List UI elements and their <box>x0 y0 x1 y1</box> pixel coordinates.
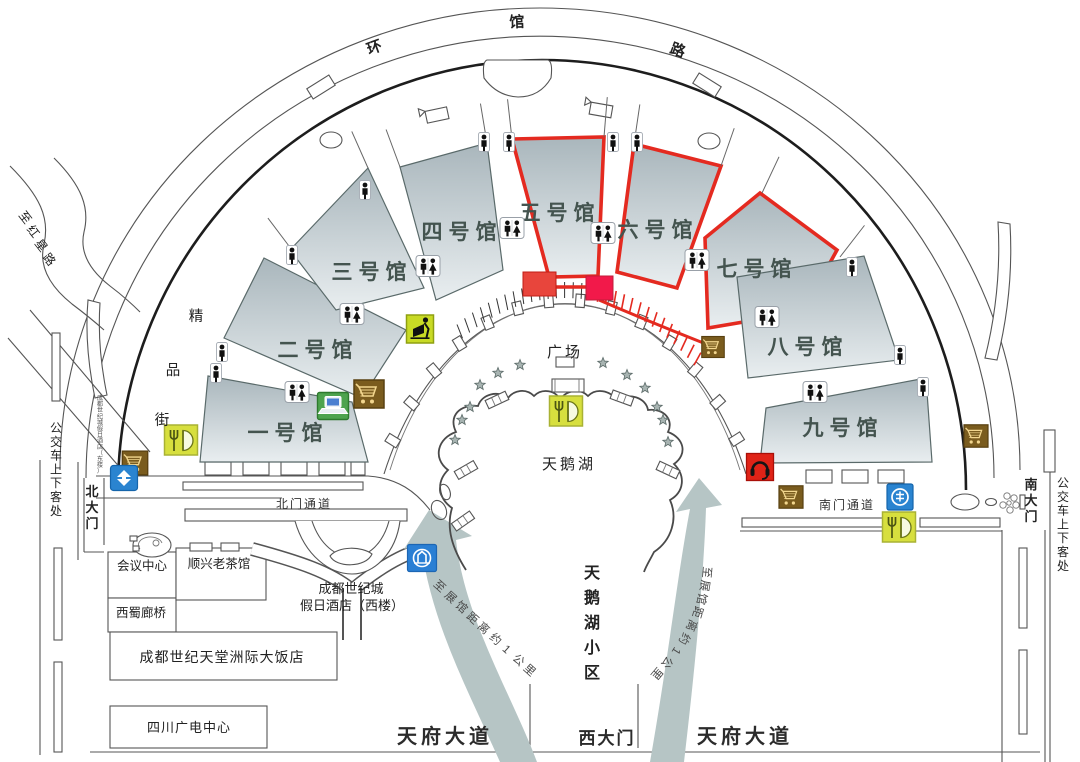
conference-center-label: 会议中心 <box>117 558 168 573</box>
tree-marker <box>465 402 475 412</box>
svg-text:公: 公 <box>1057 476 1069 490</box>
highlight-entrance-east <box>586 276 613 300</box>
svg-text:处: 处 <box>1057 559 1069 573</box>
hall-4-label: 四号馆 <box>422 220 503 244</box>
svg-text:上: 上 <box>1057 517 1069 531</box>
south-gate-label: 南大门 <box>1024 477 1037 524</box>
person-icon <box>895 346 906 365</box>
svg-text:小: 小 <box>584 639 600 657</box>
tree-marker <box>663 437 673 447</box>
person-icon <box>632 133 643 152</box>
restroom-icon <box>500 218 524 239</box>
svg-text:南: 南 <box>1024 477 1037 492</box>
svg-text:）: ） <box>97 468 103 475</box>
svg-text:门: 门 <box>1024 509 1037 524</box>
svg-text:上: 上 <box>50 462 62 476</box>
shopping-cart-icon <box>779 486 803 508</box>
hongxing-road-label: 至红星路 <box>16 208 59 268</box>
west-gate-label: 西大门 <box>579 728 636 748</box>
holiday-hotel-east-label: 成都世纪城假日酒店（东楼） <box>97 394 103 475</box>
tianfu-avenue-right-label: 天府大道 <box>697 724 793 748</box>
svg-text:环: 环 <box>364 37 384 58</box>
svg-text:馆: 馆 <box>509 13 525 32</box>
restaurant-icon <box>550 396 583 426</box>
bus-stop-left-label: 公交车上下客处 <box>50 421 62 518</box>
hall-3-label: 三号馆 <box>332 260 413 284</box>
restroom-icon <box>803 382 827 403</box>
north-gate-label: 北大门 <box>85 484 98 531</box>
svg-text:交: 交 <box>1057 489 1069 504</box>
laptop-icon <box>318 393 349 420</box>
svg-text:大: 大 <box>85 500 98 515</box>
svg-text:天: 天 <box>584 565 601 582</box>
shopping-cart-icon <box>702 337 725 358</box>
atm-icon <box>407 315 434 343</box>
person-icon <box>211 364 222 383</box>
bus-stop-right-label: 公交车上下客处 <box>1057 476 1069 573</box>
svg-text:门: 门 <box>85 516 98 531</box>
approach-arrows <box>404 478 722 762</box>
holiday-hotel-label-line2: 假日酒店（西楼） <box>300 598 404 613</box>
tree-marker <box>493 368 503 378</box>
plaza-label: 广场 <box>547 344 583 361</box>
boutique-street-label: 精品街 <box>155 308 204 429</box>
inner-colonnade <box>384 282 746 474</box>
person-icon <box>479 133 490 152</box>
svg-text:客: 客 <box>1057 544 1069 559</box>
restroom-icon <box>340 304 364 325</box>
hall-5-label: 五号馆 <box>520 201 601 225</box>
svg-text:街: 街 <box>155 412 170 429</box>
shopping-cart-icon <box>354 380 384 408</box>
hall-6-label: 六号馆 <box>618 218 699 242</box>
tree-marker <box>515 360 525 370</box>
person-icon <box>217 343 228 362</box>
north-passage-label: 北门通道 <box>276 496 332 511</box>
person-icon <box>360 181 371 200</box>
customer-service-icon <box>747 454 774 481</box>
exhibition-center-map: 一号馆 二号馆 三号馆 四号馆 五号馆 六号馆 七号馆 八号馆 九号馆 广场 天… <box>0 0 1080 762</box>
svg-text:公: 公 <box>50 421 62 435</box>
swan-lake-label: 天鹅湖 <box>542 456 596 473</box>
north-entrance-structure <box>483 60 551 97</box>
broadcast-center-label: 四川广电中心 <box>147 720 231 735</box>
hall9-docks <box>806 470 904 483</box>
svg-text:区: 区 <box>584 664 600 682</box>
ccb-bank-icon <box>111 466 138 491</box>
tree-marker <box>457 415 467 425</box>
restroom-icon <box>685 250 709 271</box>
svg-text:品: 品 <box>166 362 181 379</box>
hall-2-label: 二号馆 <box>278 338 359 362</box>
restroom-icon <box>755 307 779 328</box>
jetty-marker <box>454 461 478 480</box>
svg-text:约: 约 <box>487 630 505 648</box>
hall-7-label: 七号馆 <box>717 257 798 281</box>
person-icon <box>504 133 515 152</box>
hall-9-label: 九号馆 <box>802 416 884 440</box>
tree-marker <box>640 383 650 393</box>
svg-text:客: 客 <box>50 489 62 504</box>
svg-text:精: 精 <box>189 308 204 325</box>
svg-text:下: 下 <box>50 476 62 490</box>
xishu-bridge-label: 西蜀廊桥 <box>116 605 167 620</box>
restaurant-icon <box>883 512 916 542</box>
tree-marker <box>598 358 608 368</box>
svg-text:1: 1 <box>500 643 513 656</box>
ring-road-label: 环馆路 <box>364 13 688 62</box>
jetty-marker <box>451 511 474 531</box>
south-passage-label: 南门通道 <box>819 497 875 512</box>
restroom-icon <box>285 382 309 403</box>
highlight-entrance-west <box>523 272 556 296</box>
teahouse-label: 顺兴老茶馆 <box>188 556 251 571</box>
ring-road-median-right <box>985 222 1011 360</box>
svg-text:至: 至 <box>700 566 713 579</box>
svg-text:车: 车 <box>1057 503 1069 518</box>
hall-8-label: 八号馆 <box>768 335 849 359</box>
svg-text:鹅: 鹅 <box>584 588 600 607</box>
svg-text:北: 北 <box>85 484 98 499</box>
map-canvas: 一号馆 二号馆 三号馆 四号馆 五号馆 六号馆 七号馆 八号馆 九号馆 广场 天… <box>0 0 1080 762</box>
hall-1-label: 一号馆 <box>248 421 329 445</box>
svg-text:车: 车 <box>50 448 62 463</box>
holiday-hotel-label-line1: 成都世纪城 <box>318 581 383 596</box>
restroom-icon <box>591 223 615 244</box>
svg-text:里: 里 <box>521 662 538 679</box>
tree-marker <box>622 370 632 380</box>
person-icon <box>847 258 858 277</box>
bank-icon <box>887 484 913 510</box>
restaurant-icon <box>165 425 198 455</box>
person-icon <box>608 133 619 152</box>
south-roundabout <box>951 493 1025 513</box>
svg-text:处: 处 <box>50 504 62 518</box>
arrow-right <box>650 478 722 762</box>
person-icon <box>918 378 929 397</box>
tianfu-avenue-left-label: 天府大道 <box>397 724 493 748</box>
svg-text:大: 大 <box>1024 493 1037 508</box>
hall1-docks <box>205 462 365 475</box>
svg-text:里: 里 <box>648 665 665 682</box>
intercontinental-label: 成都世纪天堂洲际大饭店 <box>140 649 305 665</box>
shopping-cart-icon <box>964 425 988 447</box>
svg-text:下: 下 <box>1057 531 1069 545</box>
jetty-marker <box>656 461 680 478</box>
tree-marker <box>475 380 485 390</box>
plaza-kiosk <box>552 379 584 392</box>
swan-lake-block-label: 天鹅湖小区 <box>584 565 601 682</box>
tree-marker <box>450 435 460 445</box>
ring-road-median-left <box>87 300 107 398</box>
jetty-marker <box>610 390 634 406</box>
svg-text:路: 路 <box>668 39 689 61</box>
metro-icon <box>408 545 437 572</box>
svg-text:湖: 湖 <box>584 614 600 632</box>
restroom-icon <box>416 256 440 277</box>
person-icon <box>287 246 298 265</box>
svg-text:交: 交 <box>50 434 62 449</box>
